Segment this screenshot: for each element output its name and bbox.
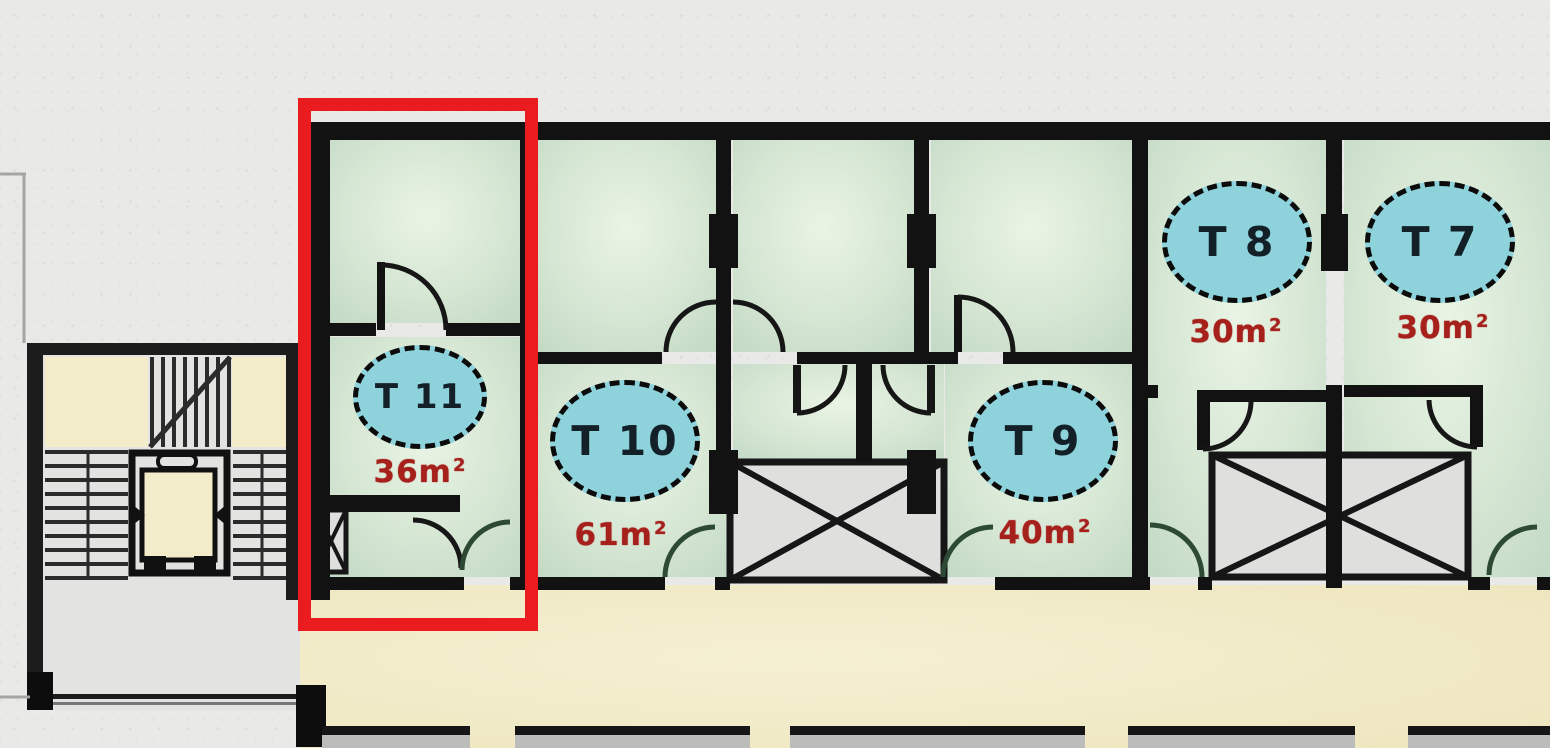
stair-landing-top-right — [232, 357, 286, 447]
elevator-counterweight — [158, 455, 196, 468]
area-label-t10: 61m2 — [536, 517, 706, 553]
unit-badge-t9[interactable]: T 9 — [968, 380, 1118, 502]
unit-label: T 7 — [1402, 218, 1479, 266]
area-label-t8: 30m2 — [1151, 314, 1321, 350]
unit-badge-t8[interactable]: T 8 — [1162, 181, 1312, 303]
elevator-icon — [132, 453, 227, 573]
unit-badge-t7[interactable]: T 7 — [1365, 181, 1515, 303]
stairwell — [27, 343, 326, 747]
area-label-t7: 30m2 — [1358, 310, 1528, 346]
unit-label: T 8 — [1199, 218, 1276, 266]
unit-label: T 10 — [571, 417, 678, 465]
area-label-t9: 40m2 — [960, 515, 1130, 551]
exterior-outline — [0, 174, 30, 697]
floor-plan-drawing — [0, 0, 1550, 748]
elevator-cab — [142, 470, 215, 560]
unit-badge-t10[interactable]: T 10 — [550, 380, 700, 502]
floor-plan-canvas: T 11 T 10 T 9 T 8 T 7 36m2 61m2 40m2 30m… — [0, 0, 1550, 748]
unit-label: T 9 — [1005, 417, 1082, 465]
highlight-box-t11 — [298, 98, 538, 631]
stair-landing-top-left — [45, 357, 148, 447]
